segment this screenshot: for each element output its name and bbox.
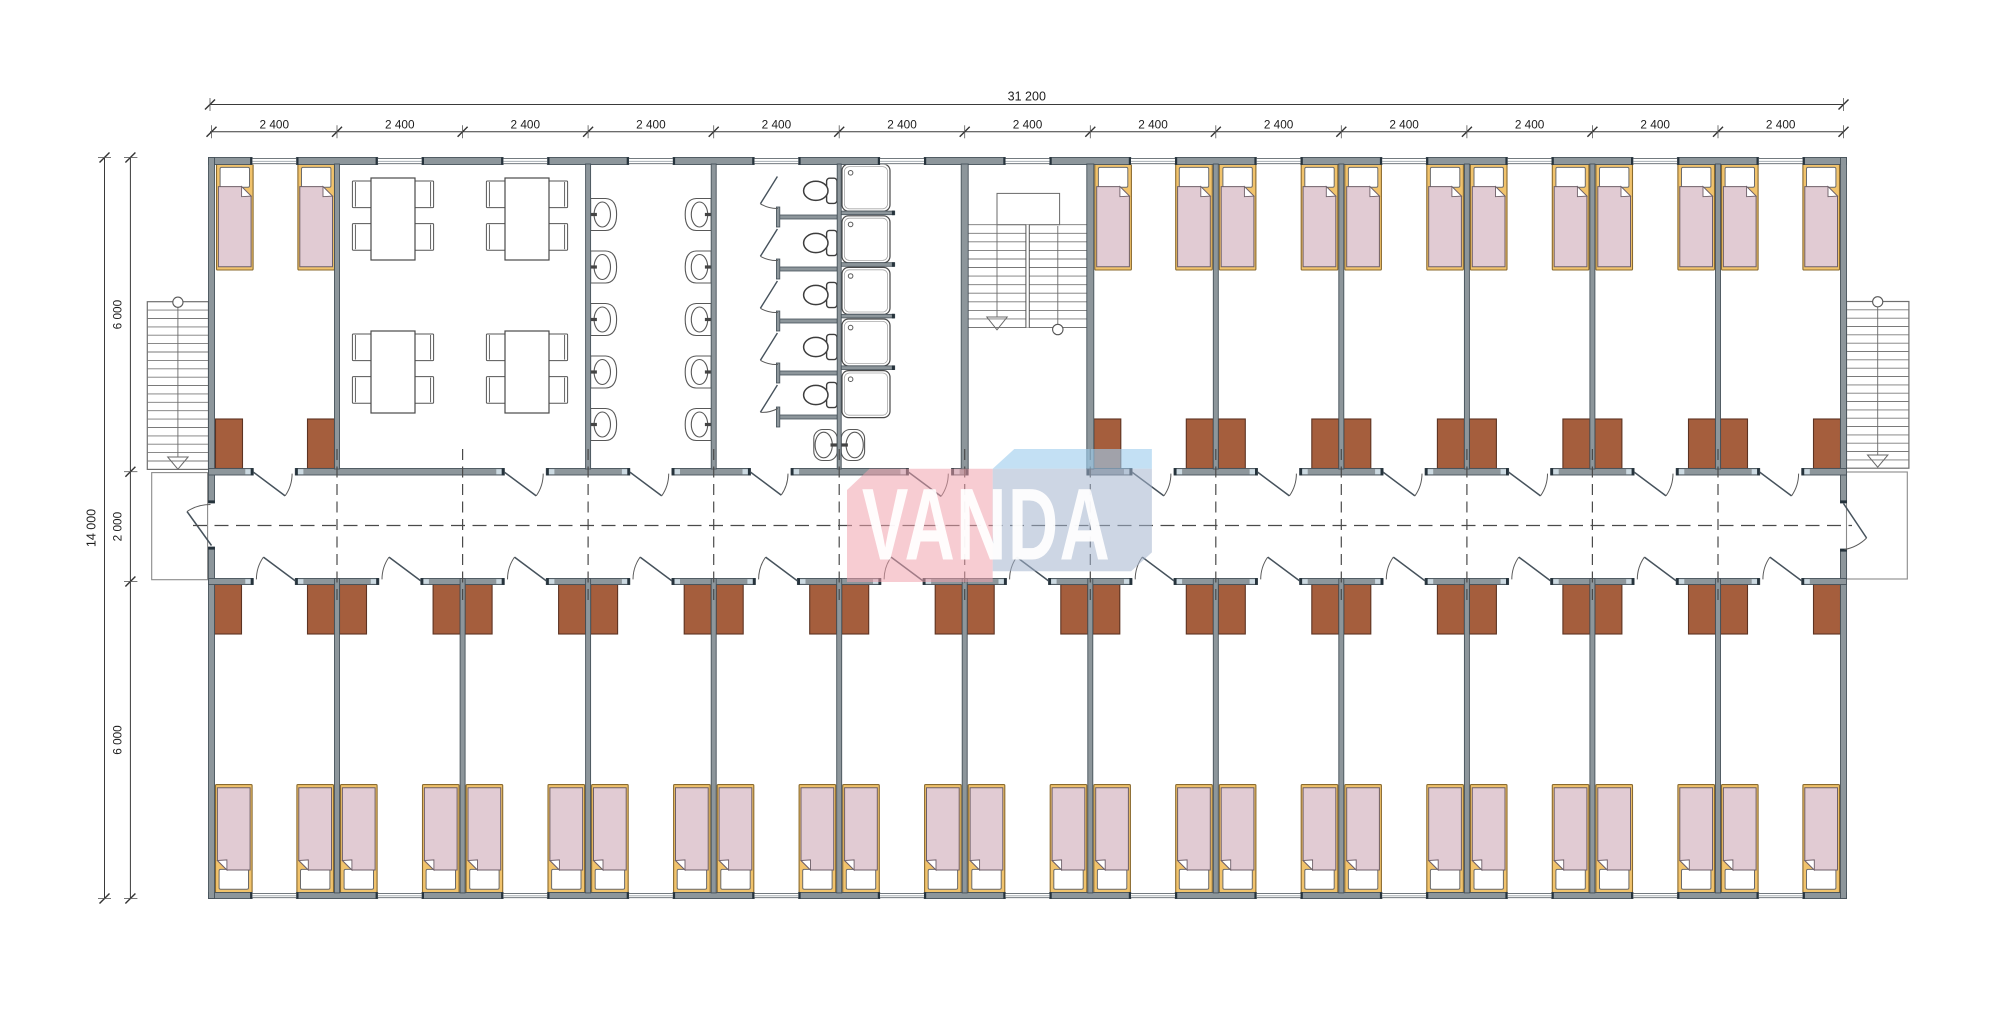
svg-text:2 400: 2 400 xyxy=(1640,117,1670,131)
svg-text:2 400: 2 400 xyxy=(636,117,666,131)
svg-text:2 400: 2 400 xyxy=(1766,117,1796,131)
svg-text:2 400: 2 400 xyxy=(260,117,290,131)
svg-text:2 400: 2 400 xyxy=(385,117,415,131)
svg-text:2 400: 2 400 xyxy=(511,117,541,131)
svg-text:2 400: 2 400 xyxy=(1138,117,1168,131)
svg-text:2 400: 2 400 xyxy=(1264,117,1294,131)
svg-text:6 000: 6 000 xyxy=(110,725,124,755)
svg-text:2 400: 2 400 xyxy=(887,117,917,131)
svg-text:2 400: 2 400 xyxy=(762,117,792,131)
svg-text:2 400: 2 400 xyxy=(1013,117,1043,131)
svg-text:2 400: 2 400 xyxy=(1515,117,1545,131)
svg-text:VANDA: VANDA xyxy=(862,467,1111,581)
svg-text:14 000: 14 000 xyxy=(85,509,99,547)
svg-text:2 400: 2 400 xyxy=(1389,117,1419,131)
svg-text:6 000: 6 000 xyxy=(110,299,124,329)
svg-text:2 000: 2 000 xyxy=(110,511,124,541)
svg-text:31 200: 31 200 xyxy=(1008,90,1046,104)
